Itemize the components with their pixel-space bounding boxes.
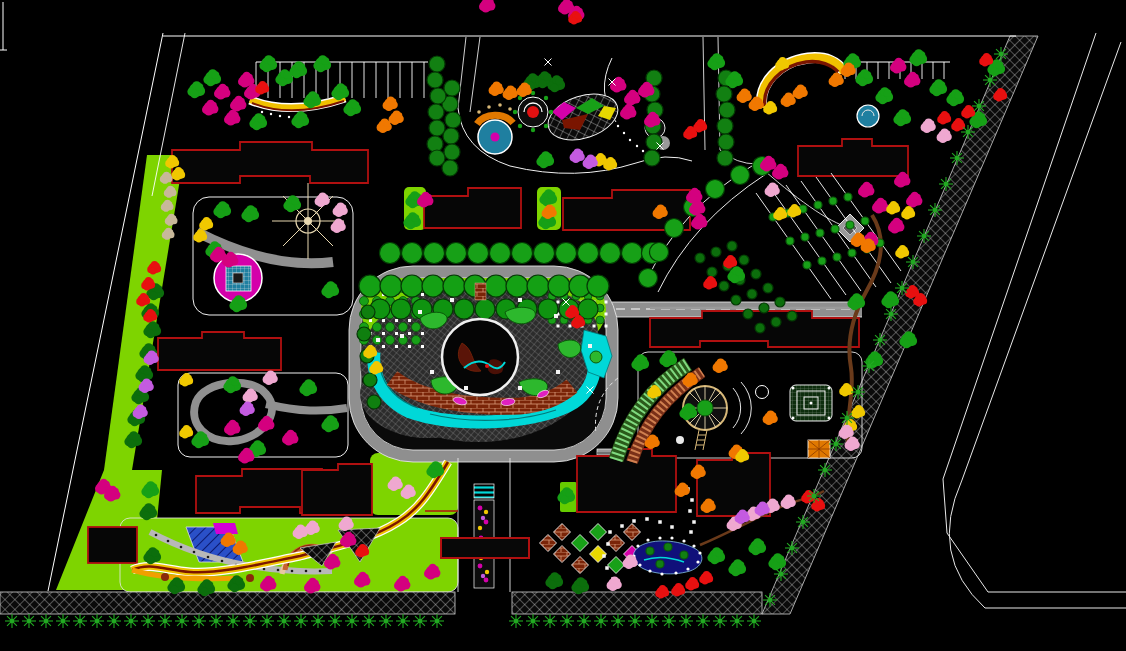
site-plan-canvas[interactable] bbox=[0, 0, 1126, 651]
plaza-pond-accent bbox=[485, 364, 489, 368]
spiral-plaza-center bbox=[527, 106, 539, 118]
south-hatch-band-east bbox=[512, 592, 762, 614]
building-5 bbox=[158, 332, 281, 370]
plaza-pond bbox=[442, 319, 518, 395]
building-8 bbox=[88, 527, 137, 563]
south-gate bbox=[441, 538, 529, 558]
pool-magenta-deck bbox=[213, 523, 238, 534]
white-stone-marker bbox=[676, 436, 684, 444]
south-hatch-band-west bbox=[0, 592, 455, 614]
cad-viewport bbox=[0, 0, 1126, 651]
plaza-tree-row-2 bbox=[370, 299, 598, 319]
building-10 bbox=[577, 449, 676, 512]
compass-hub bbox=[304, 217, 312, 225]
plaza-brick-pillar bbox=[475, 283, 486, 300]
plaza-island-6 bbox=[590, 351, 602, 363]
south-road-crosswalk bbox=[474, 484, 494, 498]
fountain-north-center bbox=[491, 133, 500, 142]
orange-lattice-lines bbox=[808, 440, 830, 458]
fountain-ne bbox=[857, 105, 879, 127]
pergola-tree bbox=[697, 400, 713, 416]
play-core bbox=[233, 273, 243, 283]
building-9 bbox=[302, 464, 372, 515]
